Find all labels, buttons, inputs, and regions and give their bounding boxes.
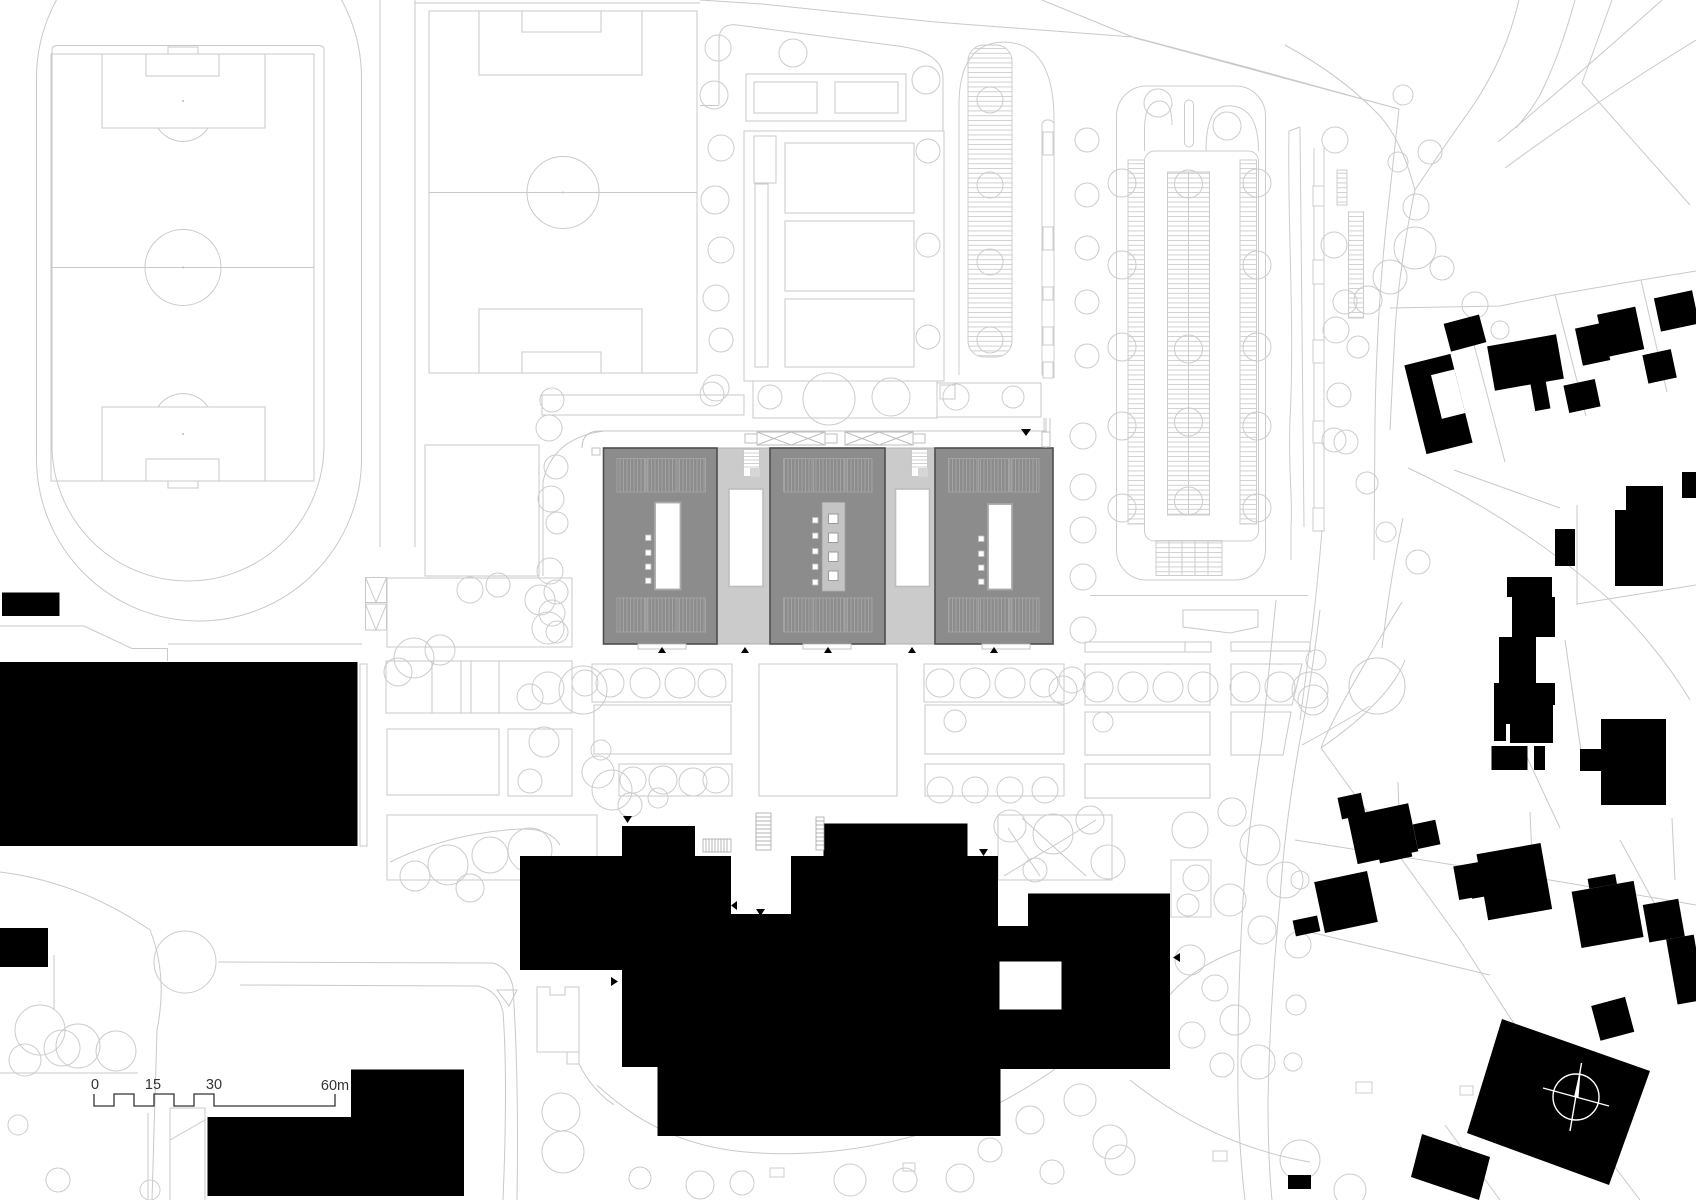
- svg-text:30: 30: [206, 1077, 222, 1093]
- svg-text:15: 15: [145, 1077, 161, 1093]
- svg-text:0: 0: [91, 1077, 99, 1093]
- svg-text:60m: 60m: [321, 1078, 349, 1094]
